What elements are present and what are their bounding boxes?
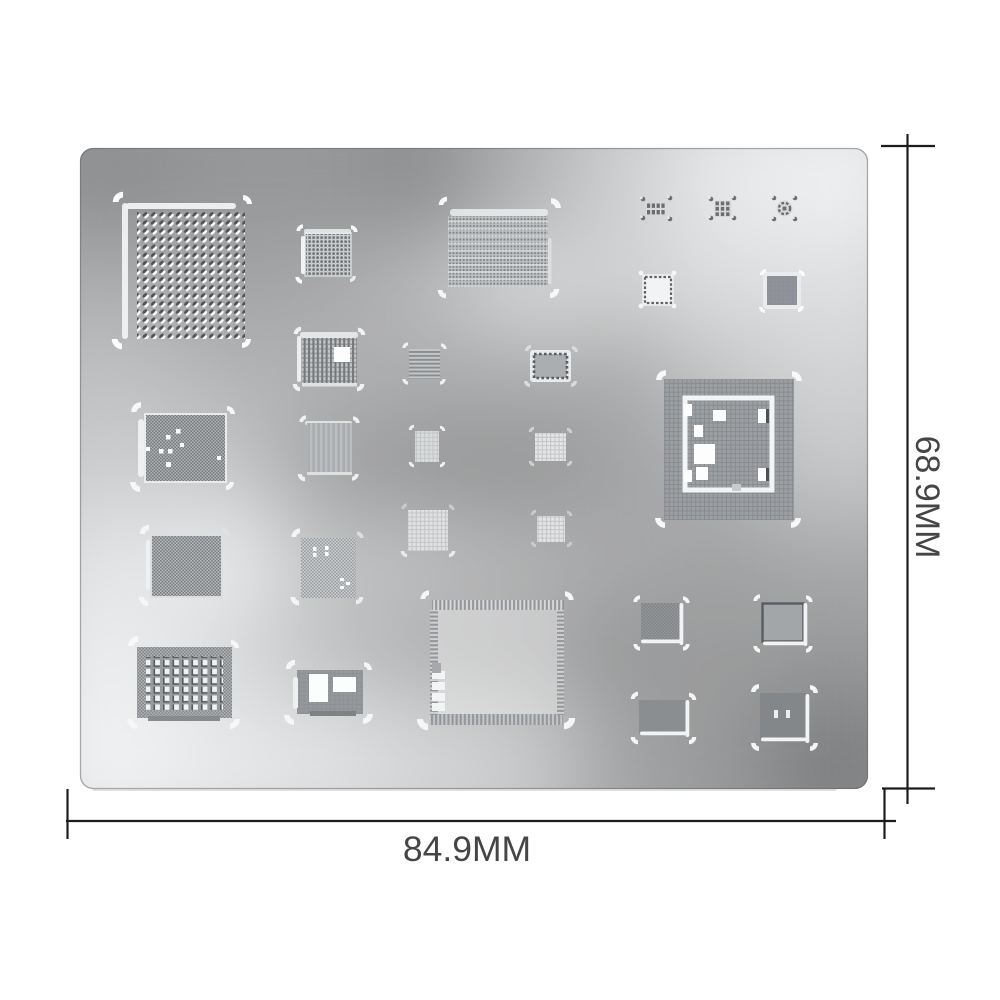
svg-text:84.9MM: 84.9MM	[403, 829, 531, 869]
svg-text:68.9MM: 68.9MM	[908, 436, 946, 559]
